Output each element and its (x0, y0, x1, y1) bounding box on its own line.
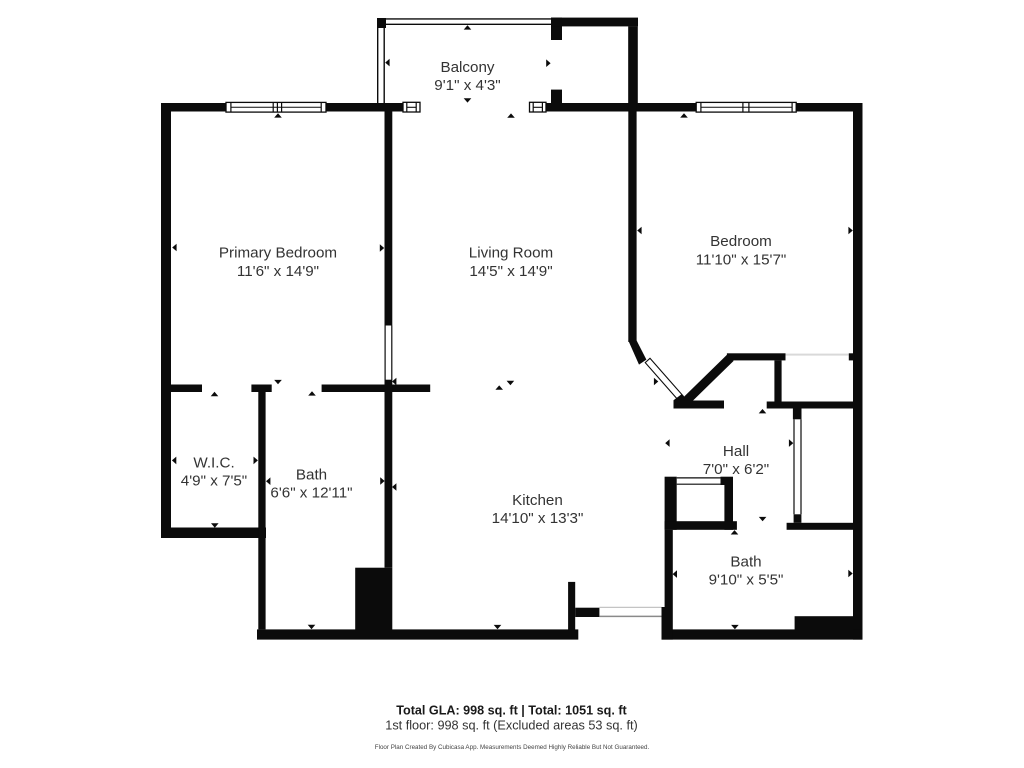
svg-text:Bath: Bath (296, 467, 327, 484)
svg-text:Hall: Hall (723, 443, 749, 460)
svg-text:Bath: Bath (730, 554, 761, 571)
svg-text:W.I.C.: W.I.C. (193, 455, 234, 472)
svg-text:Primary Bedroom: Primary Bedroom (219, 245, 337, 262)
svg-text:Floor Plan Created By Cubicasa: Floor Plan Created By Cubicasa App. Meas… (375, 744, 650, 751)
svg-text:Balcony: Balcony (440, 59, 494, 76)
svg-text:1st floor: 998 sq. ft (Exclude: 1st floor: 998 sq. ft (Excluded areas 53… (385, 719, 637, 733)
svg-text:11'10" x 15'7": 11'10" x 15'7" (696, 252, 787, 269)
svg-text:9'1" x 4'3": 9'1" x 4'3" (434, 77, 500, 94)
svg-text:Total GLA: 998 sq. ft | Total:: Total GLA: 998 sq. ft | Total: 1051 sq. … (396, 704, 627, 718)
svg-text:Bedroom: Bedroom (710, 233, 772, 250)
svg-text:6'6" x 12'11": 6'6" x 12'11" (270, 485, 352, 502)
svg-text:4'9" x 7'5": 4'9" x 7'5" (181, 473, 247, 490)
svg-text:11'6" x 14'9": 11'6" x 14'9" (237, 263, 319, 280)
svg-text:7'0" x 6'2": 7'0" x 6'2" (703, 461, 769, 478)
svg-text:14'5" x 14'9": 14'5" x 14'9" (469, 263, 552, 280)
svg-text:Living Room: Living Room (469, 245, 553, 262)
svg-text:9'10" x 5'5": 9'10" x 5'5" (709, 572, 784, 589)
svg-text:14'10" x 13'3": 14'10" x 13'3" (492, 510, 584, 527)
svg-text:Kitchen: Kitchen (512, 492, 563, 509)
